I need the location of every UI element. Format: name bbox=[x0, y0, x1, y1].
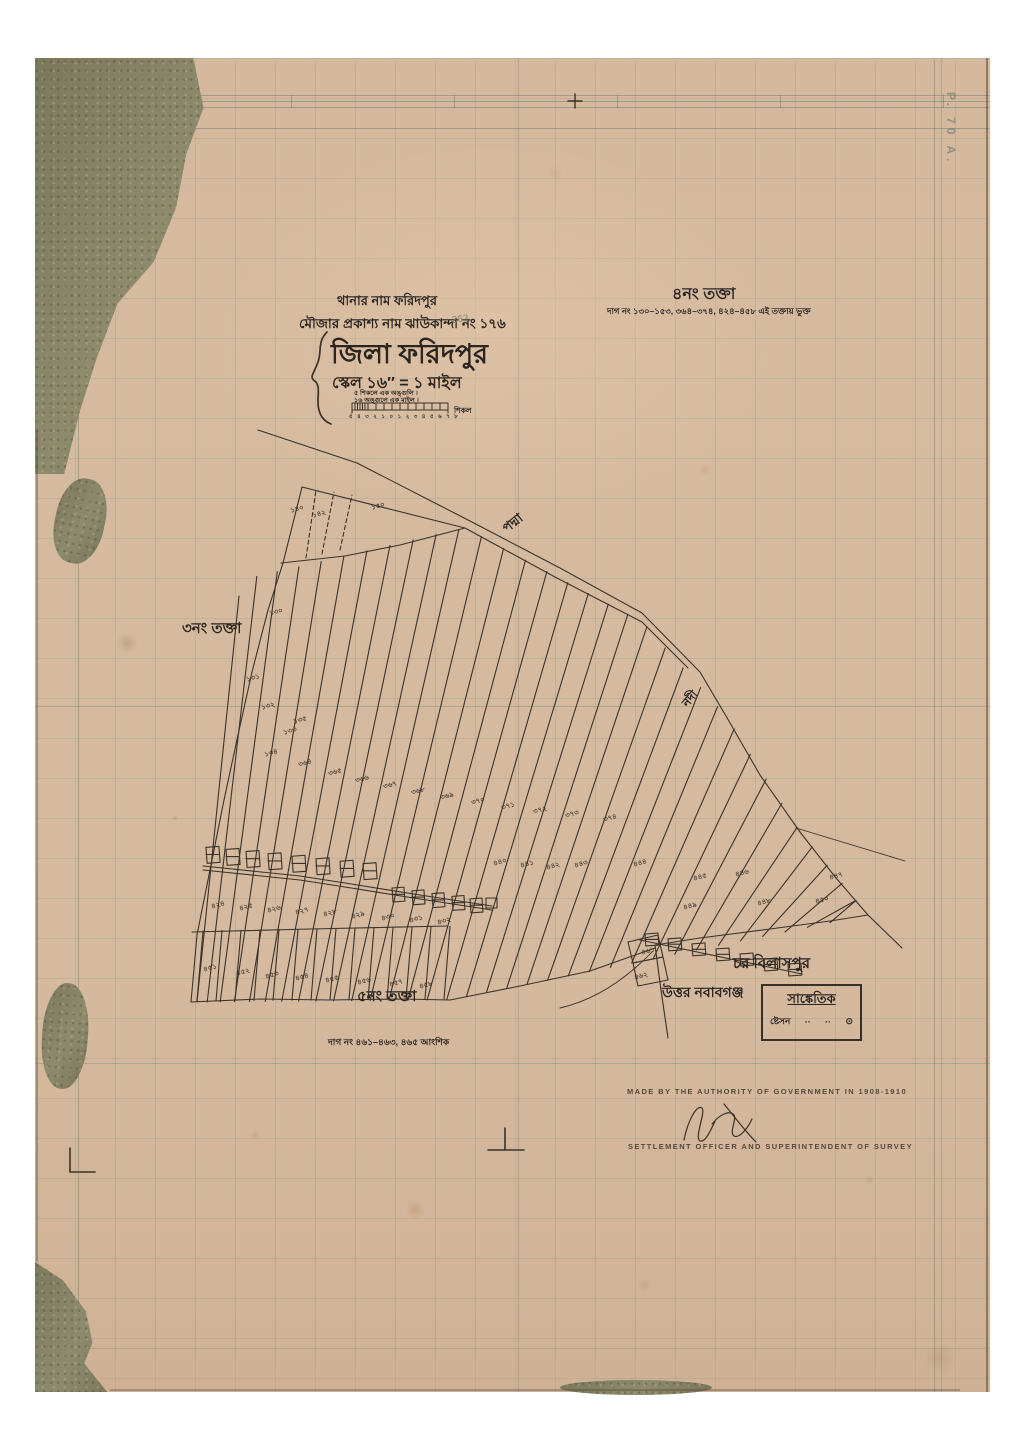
legend-title: সাঙ্কেতিক bbox=[763, 990, 860, 1011]
scanned-survey-map-sheet: থানার নাম ফরিদপুর মৌজার প্রকাশ্য নাম ঝাউ… bbox=[0, 0, 1024, 1449]
title-block-brace bbox=[312, 332, 331, 424]
dashed-strip bbox=[340, 495, 352, 550]
sheet3-title: ৩নং তক্তা bbox=[182, 617, 242, 642]
dashed-strip bbox=[306, 490, 316, 558]
pencil-annotation: 363 bbox=[451, 313, 469, 326]
south-boundary bbox=[191, 948, 655, 1002]
field-strip-line bbox=[352, 529, 459, 1000]
mouza-name-label: মৌজার প্রকাশ্য নাম ঝাউকান্দা নং ১৭৬ bbox=[299, 313, 506, 336]
cadastral-drawing bbox=[0, 0, 1024, 1449]
wedge-top-line bbox=[302, 487, 465, 528]
field-strip-line bbox=[197, 596, 239, 1002]
sheet5-subtitle: দাগ নং ৪৬১–৪৬৩, ৪৬৫ আংশিক bbox=[328, 1035, 449, 1050]
field-strip-line bbox=[316, 540, 413, 1001]
registration-mark-bottom-center bbox=[488, 1128, 524, 1150]
registration-mark-top bbox=[568, 94, 582, 108]
road-line bbox=[203, 870, 492, 910]
field-strip-line bbox=[265, 556, 344, 1001]
signature-ink bbox=[684, 1104, 756, 1142]
field-strip-line bbox=[234, 567, 299, 1002]
field-strip-line bbox=[675, 779, 766, 954]
scale-bar-unit: শিকল bbox=[454, 406, 471, 418]
field-strip-line bbox=[250, 562, 322, 1002]
road-line bbox=[203, 866, 492, 906]
sheet4-subtitle: দাগ নং ১৩০–১৫৩, ৩৬৪–৩৭৪, ৪২৪–৪৫৮ এই তক্ত… bbox=[607, 305, 811, 319]
char-bilaspur-label: চর বিলাসপুর bbox=[733, 952, 810, 977]
bottom-plot-divider bbox=[197, 931, 203, 1001]
field-strip-line bbox=[807, 900, 856, 927]
field-strip-line bbox=[408, 560, 526, 1000]
field-strip-line bbox=[427, 572, 547, 1001]
sheet5-title: ৫নং তক্তা bbox=[357, 985, 417, 1010]
imprint-line-2: SETTLEMENT OFFICER AND SUPERINTENDENT OF… bbox=[628, 1142, 913, 1151]
corner-stamp: P. 70 A. bbox=[944, 92, 958, 165]
bottom-plot-divider bbox=[216, 931, 222, 1001]
registration-mark-bottom-left bbox=[70, 1148, 95, 1172]
station-symbol-icon: ⊙ bbox=[845, 1016, 853, 1027]
field-strip-line bbox=[589, 688, 700, 972]
old-bank-branch bbox=[796, 828, 905, 861]
bottom-plot-divider bbox=[330, 929, 336, 1000]
legend-dots: ·· bbox=[825, 1017, 831, 1027]
strip-top-boundary bbox=[465, 528, 688, 668]
field-strip-line bbox=[697, 803, 782, 950]
sheet4-title: ৪নং তক্তা bbox=[672, 281, 735, 308]
field-strip-line bbox=[653, 754, 750, 959]
dashed-strip bbox=[322, 492, 334, 554]
river-tip-line bbox=[868, 915, 902, 948]
bottom-plot-divider bbox=[311, 929, 317, 1000]
wedge-bottom-line bbox=[281, 528, 465, 563]
scale-note-2: ১৬ অঙ্গুলে এক মাইল । bbox=[354, 395, 419, 406]
imprint-line-1: MADE BY THE AUTHORITY OF GOVERNMENT IN 1… bbox=[627, 1087, 907, 1096]
field-strip-line bbox=[610, 707, 717, 968]
thana-name-label: থানার নাম ফরিদপুর bbox=[337, 292, 437, 313]
field-strip-line bbox=[507, 614, 628, 988]
scale-bar-tick-labels: ৫ ৪ ৩ ২ ১ ০ ১ ২ ৩ ৪ ৫ ৬ ৭ ৮ bbox=[349, 414, 469, 422]
field-strip-line bbox=[548, 648, 666, 980]
legend-row-label: ষ্টেসন bbox=[770, 1014, 790, 1029]
west-boundary bbox=[191, 487, 302, 1002]
legend-box: সাঙ্কেতিক ষ্টেসন ·· ·· ⊙ bbox=[761, 984, 862, 1041]
field-strip-line bbox=[334, 535, 437, 1001]
uttar-nawabganj-label: উত্তর নবাবগঞ্জ bbox=[662, 981, 744, 1005]
legend-dots: ·· bbox=[805, 1017, 811, 1027]
field-strip-line bbox=[370, 537, 481, 1001]
field-strip-line bbox=[785, 883, 842, 932]
